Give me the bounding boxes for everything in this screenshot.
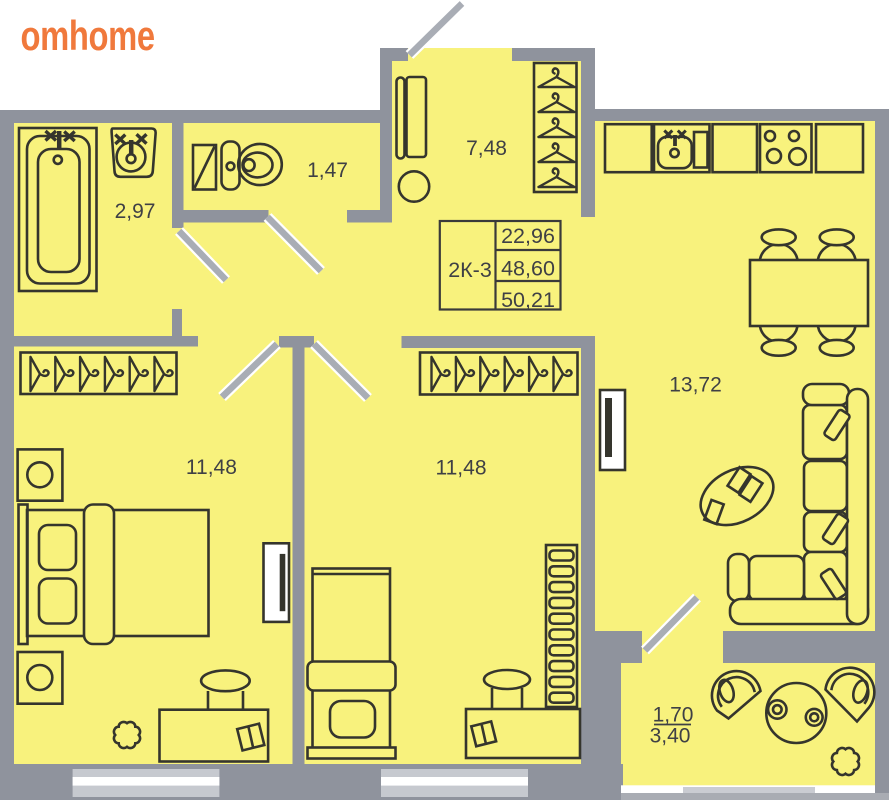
svg-text:1,47: 1,47: [307, 159, 348, 182]
svg-text:2К-3: 2К-3: [448, 258, 492, 282]
svg-text:11,48: 11,48: [436, 457, 487, 480]
svg-text:1,70: 1,70: [653, 704, 694, 727]
svg-text:2,97: 2,97: [115, 200, 156, 223]
svg-text:7,48: 7,48: [466, 137, 507, 160]
svg-text:omhome: omhome: [21, 12, 155, 59]
svg-text:11,48: 11,48: [186, 456, 237, 479]
svg-text:3,40: 3,40: [650, 725, 691, 748]
svg-text:13,72: 13,72: [669, 374, 722, 397]
svg-text:50,21: 50,21: [501, 288, 555, 312]
svg-text:48,60: 48,60: [501, 257, 555, 281]
svg-text:22,96: 22,96: [501, 224, 555, 248]
